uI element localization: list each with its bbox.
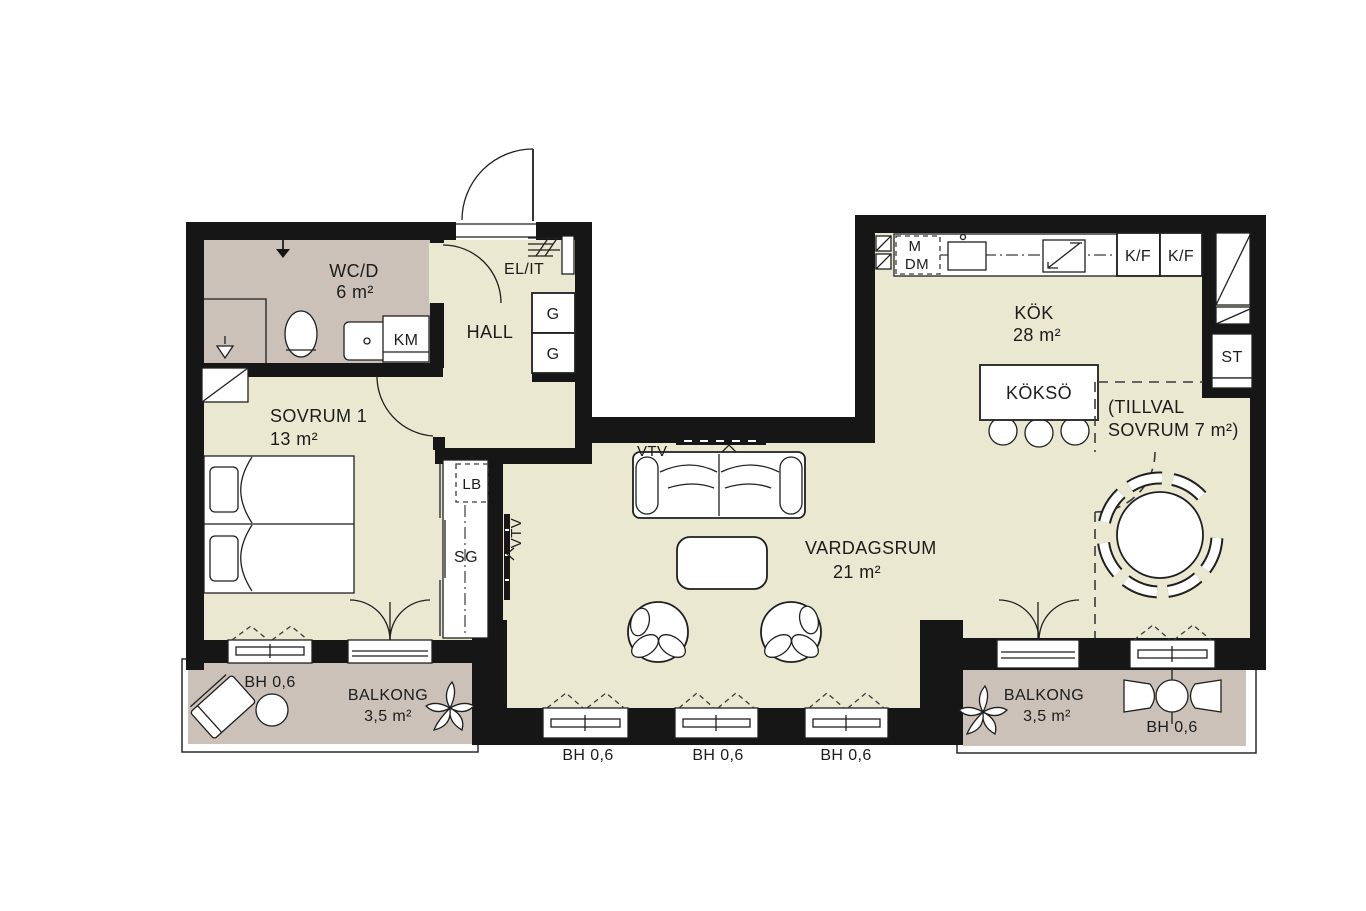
armchair-right bbox=[761, 602, 823, 662]
room-area-vardagsrum: 21 m² bbox=[833, 562, 881, 582]
window-label-bh-dining: BH 0,6 bbox=[1146, 719, 1197, 736]
room-label-tillval-1: (TILLVAL bbox=[1108, 397, 1185, 417]
room-area-kok: 28 m² bbox=[1013, 325, 1061, 345]
fixture-label-vtv-side: VTV bbox=[508, 518, 525, 548]
room-label-sovrum1: SOVRUM 1 bbox=[270, 406, 367, 426]
stove bbox=[1043, 240, 1085, 272]
window-label-bh-bay3: BH 0,6 bbox=[820, 747, 871, 764]
floorplan-page: WC/D 6 m² HALL SOVRUM 1 13 m² VARDAGSRUM… bbox=[0, 0, 1366, 911]
armchair-left bbox=[628, 602, 690, 662]
room-label-balkong-right: BALKONG bbox=[1004, 687, 1084, 704]
service-shaft bbox=[1216, 233, 1250, 324]
building-notch bbox=[575, 230, 862, 420]
double-bed bbox=[204, 456, 354, 593]
room-area-balkong-left: 3,5 m² bbox=[364, 708, 412, 725]
bedroom-shaft bbox=[202, 368, 248, 402]
room-area-wcd: 6 m² bbox=[336, 282, 374, 302]
fixture-label-dm: DM bbox=[905, 256, 929, 273]
fixture-label-vtv-sofa: VTV bbox=[637, 443, 667, 460]
room-label-vardagsrum: VARDAGSRUM bbox=[805, 538, 937, 558]
kitchen-island bbox=[980, 365, 1098, 447]
entrance-door bbox=[456, 149, 536, 240]
room-label-kok: KÖK bbox=[1014, 303, 1053, 323]
fixture-label-lb: LB bbox=[462, 476, 481, 493]
fixture-label-m: M bbox=[909, 238, 922, 255]
window-label-bh-bedroom: BH 0,6 bbox=[244, 674, 295, 691]
room-label-wcd: WC/D bbox=[329, 261, 379, 281]
balcony-left-table bbox=[256, 694, 288, 726]
floorplan-drawing: WC/D 6 m² HALL SOVRUM 1 13 m² VARDAGSRUM… bbox=[0, 0, 1366, 911]
fixture-label-kf-right: K/F bbox=[1168, 248, 1194, 265]
window-label-bh-bay1: BH 0,6 bbox=[562, 747, 613, 764]
fixture-label-g-upper: G bbox=[547, 306, 560, 323]
fixture-label-elit: EL/IT bbox=[504, 261, 544, 278]
coffee-table bbox=[677, 537, 767, 589]
fixture-label-kf-left: K/F bbox=[1125, 248, 1151, 265]
toilet bbox=[285, 311, 317, 357]
balcony-chair-left bbox=[1124, 680, 1155, 712]
room-area-balkong-right: 3,5 m² bbox=[1023, 708, 1071, 725]
balcony-chair-right bbox=[1191, 680, 1222, 712]
fixture-label-km: KM bbox=[394, 332, 419, 349]
window-label-bh-bay2: BH 0,6 bbox=[692, 747, 743, 764]
fixture-label-g-lower: G bbox=[547, 346, 560, 363]
room-area-sovrum1: 13 m² bbox=[270, 429, 318, 449]
sofa bbox=[633, 452, 805, 518]
fixture-label-st: ST bbox=[1221, 349, 1242, 366]
room-label-hall: HALL bbox=[467, 322, 514, 342]
room-label-balkong-left: BALKONG bbox=[348, 687, 428, 704]
room-label-tillval-2: SOVRUM 7 m²) bbox=[1108, 420, 1239, 440]
fixture-label-kokso: KÖKSÖ bbox=[1006, 383, 1072, 403]
fixture-label-sg: SG bbox=[454, 549, 478, 566]
